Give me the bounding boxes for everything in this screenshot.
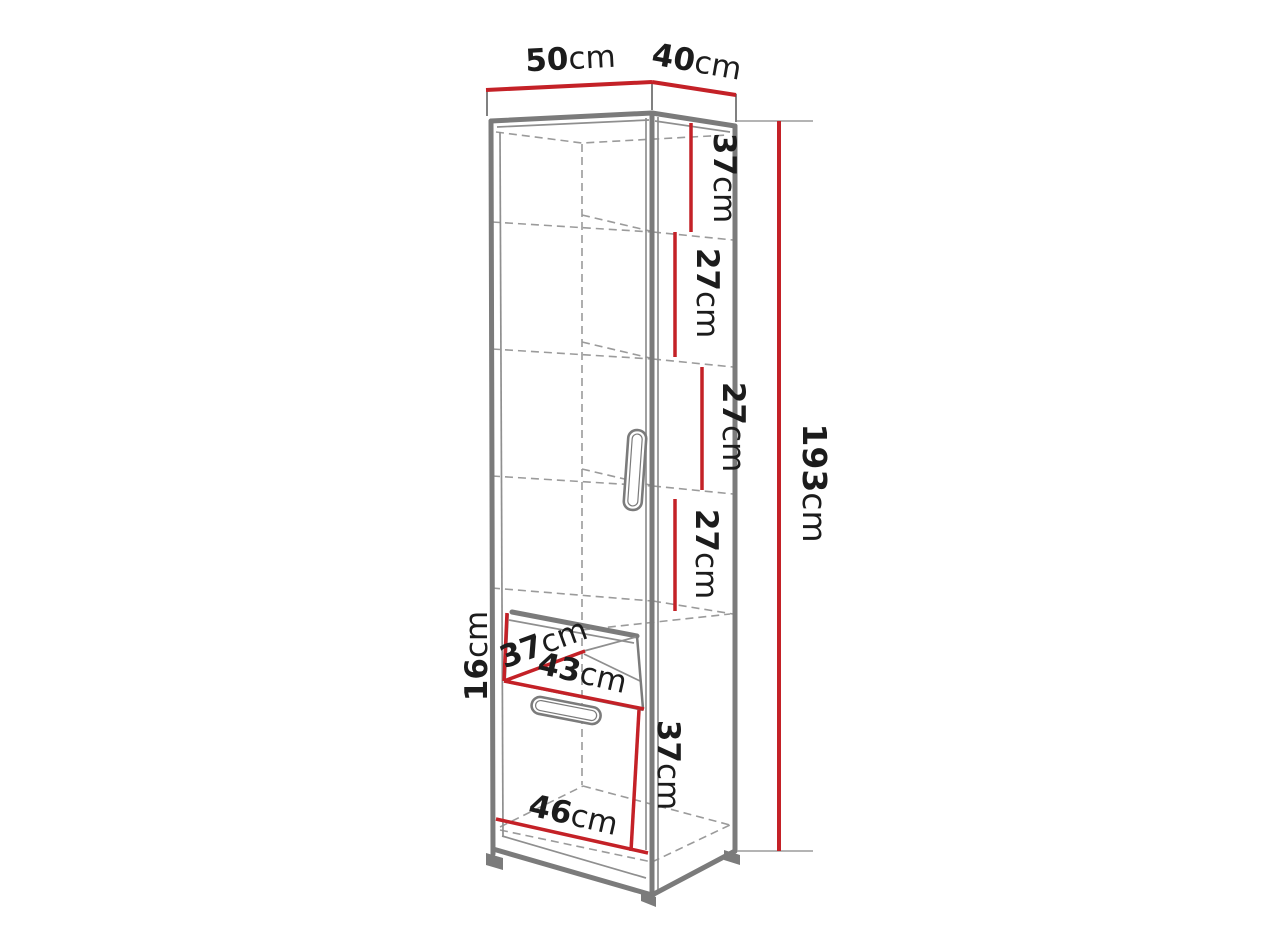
label-shelf2: 27cm: [689, 248, 725, 338]
bottom-edges: [493, 849, 735, 895]
label-shelf3: 27cm: [715, 382, 751, 472]
drawer-right-edge: [637, 636, 643, 709]
shelf1-side-edge: [653, 232, 733, 240]
inner-lines: [497, 117, 730, 891]
hidden-lines: [492, 132, 733, 862]
label-shelf1: 37cm: [706, 133, 742, 223]
label-width-top: 50cm: [524, 39, 616, 80]
shelf3-side-edge: [653, 486, 733, 494]
door-handle: [623, 429, 647, 510]
left-foot: [486, 853, 503, 870]
shelf4-side-edge: [653, 601, 733, 614]
shelf1-back-edge: [582, 215, 650, 231]
shelf2-back-edge: [582, 342, 650, 358]
top-panel-back-edge: [496, 132, 728, 143]
shelf4-front-edge: [492, 588, 652, 601]
shelf2-front-edge: [492, 349, 652, 359]
label-total-height: 193cm: [795, 423, 834, 542]
label-bottom-section: 37cm: [650, 720, 686, 810]
shelf2-side-edge: [653, 359, 733, 367]
dim-line-width-top: [486, 82, 652, 90]
label-depth-top: 40cm: [649, 37, 744, 88]
label-shelf4: 27cm: [688, 509, 724, 599]
label-drawer-height: 16cm: [459, 611, 495, 701]
top-edges: [491, 113, 735, 126]
dimension-diagram: 50cm 40cm 37cm 27cm 27cm 27cm 193cm 16cm…: [0, 0, 1265, 948]
floor-right-edge: [652, 825, 730, 862]
left-edge: [491, 121, 493, 854]
dim-line-bottom-section: [631, 710, 639, 851]
wardrobe-drawing: 50cm 40cm 37cm 27cm 27cm 27cm 193cm 16cm…: [0, 0, 1265, 948]
shelf1-front-edge: [492, 222, 652, 232]
door-left-edge: [500, 132, 503, 836]
